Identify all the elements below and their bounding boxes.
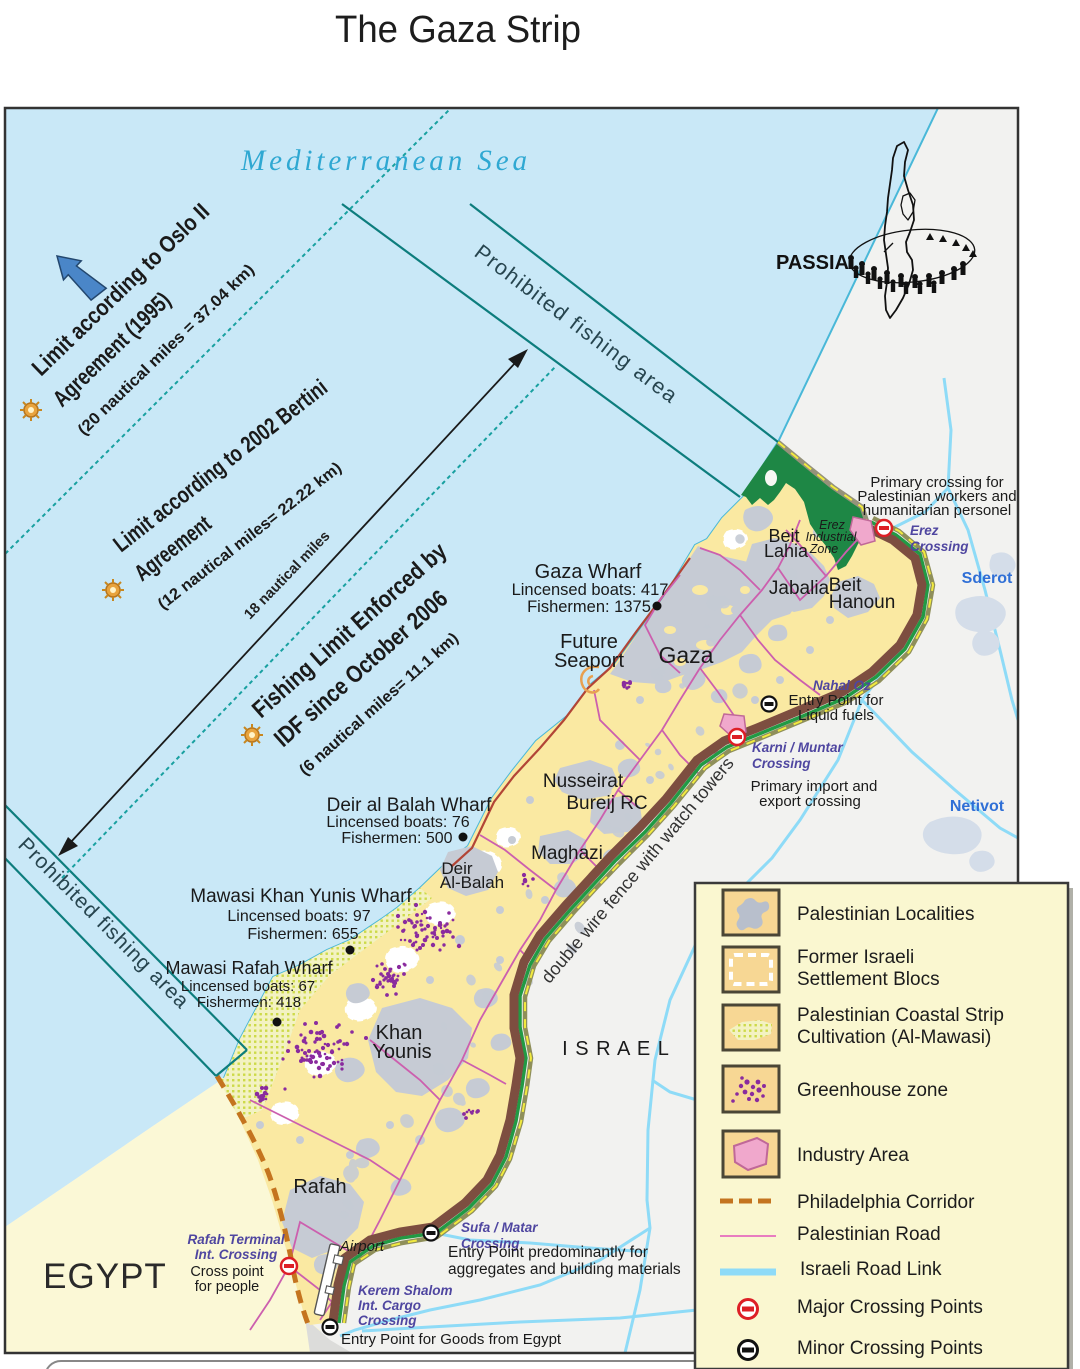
svg-text:Nusseirat: Nusseirat xyxy=(543,771,624,792)
svg-text:Karni / Muntar: Karni / Muntar xyxy=(752,740,844,755)
svg-text:aggregates and building materi: aggregates and building materials xyxy=(448,1261,681,1278)
svg-text:Sderot: Sderot xyxy=(962,570,1013,587)
svg-text:Sufa / Matar: Sufa / Matar xyxy=(461,1220,538,1235)
svg-text:Entry Point predominantly for: Entry Point predominantly for xyxy=(448,1244,648,1261)
svg-text:Cross point: Cross point xyxy=(190,1264,263,1280)
svg-text:Crossing: Crossing xyxy=(752,756,811,771)
svg-text:Lincensed boats: 76: Lincensed boats: 76 xyxy=(326,814,469,831)
svg-text:Fishermen: 655: Fishermen: 655 xyxy=(247,926,358,943)
svg-text:Entry Point for Goods from Egy: Entry Point for Goods from Egypt xyxy=(341,1331,562,1348)
svg-text:Deir al Balah Wharf: Deir al Balah Wharf xyxy=(327,795,492,816)
svg-text:Crossing: Crossing xyxy=(910,539,969,554)
svg-text:PASSIA: PASSIA xyxy=(776,252,849,274)
svg-text:Greenhouse zone: Greenhouse zone xyxy=(797,1080,948,1101)
svg-text:Al-Balah: Al-Balah xyxy=(440,873,504,892)
svg-text:Hanoun: Hanoun xyxy=(829,592,896,613)
svg-text:Int. Cargo: Int. Cargo xyxy=(358,1298,421,1313)
svg-text:Palestinian Road: Palestinian Road xyxy=(797,1224,941,1245)
svg-text:Airport: Airport xyxy=(339,1238,385,1255)
svg-text:Gaza: Gaza xyxy=(659,642,714,668)
svg-text:Mediterranean Sea: Mediterranean Sea xyxy=(240,144,531,177)
svg-text:Lahia: Lahia xyxy=(764,541,809,561)
svg-text:Fishermen: 500: Fishermen: 500 xyxy=(341,830,452,847)
svg-text:Seaport: Seaport xyxy=(554,650,624,672)
svg-text:Zone: Zone xyxy=(809,542,839,556)
svg-text:Mawasi Khan Yunis Wharf: Mawasi Khan Yunis Wharf xyxy=(190,886,412,907)
svg-text:Jabalia: Jabalia xyxy=(769,578,830,599)
svg-text:Lincensed boats: 97: Lincensed boats: 97 xyxy=(227,908,370,925)
svg-text:Bureij RC: Bureij RC xyxy=(566,793,647,814)
svg-text:Cultivation (Al-Mawasi): Cultivation (Al-Mawasi) xyxy=(797,1027,991,1048)
svg-text:Gaza Wharf: Gaza Wharf xyxy=(535,561,642,583)
svg-text:Maghazi: Maghazi xyxy=(531,843,603,864)
svg-text:Crossing: Crossing xyxy=(358,1313,417,1328)
svg-text:Rafah: Rafah xyxy=(293,1176,346,1198)
svg-text:EGYPT: EGYPT xyxy=(43,1257,167,1296)
svg-text:Mawasi Rafah Wharf: Mawasi Rafah Wharf xyxy=(165,958,333,978)
svg-text:Former Israeli: Former Israeli xyxy=(797,947,914,968)
svg-text:Rafah Terminal: Rafah Terminal xyxy=(187,1232,284,1247)
svg-text:humanitarian personel: humanitarian personel xyxy=(863,502,1011,519)
svg-text:Fishermen: 1375: Fishermen: 1375 xyxy=(527,598,651,616)
svg-text:Settlement Blocs: Settlement Blocs xyxy=(797,969,940,990)
svg-text:Palestinian Localities: Palestinian Localities xyxy=(797,904,974,925)
svg-text:Erez: Erez xyxy=(910,523,939,538)
svg-text:The Gaza Strip: The Gaza Strip xyxy=(335,9,581,51)
svg-text:for people: for people xyxy=(195,1279,260,1295)
svg-text:I S R A E L: I S R A E L xyxy=(562,1038,670,1060)
svg-text:Minor Crossing Points: Minor Crossing Points xyxy=(797,1338,983,1359)
svg-text:Israeli Road Link: Israeli Road Link xyxy=(800,1259,942,1280)
svg-text:Industry Area: Industry Area xyxy=(797,1145,909,1166)
svg-text:Netivot: Netivot xyxy=(950,798,1005,815)
svg-text:export crossing: export crossing xyxy=(759,793,861,810)
svg-text:Major Crossing Points: Major Crossing Points xyxy=(797,1297,983,1318)
svg-text:Lincensed boats: 417: Lincensed boats: 417 xyxy=(512,581,669,599)
svg-text:Younis: Younis xyxy=(372,1041,431,1063)
svg-text:Palestinian Coastal Strip: Palestinian Coastal Strip xyxy=(797,1005,1004,1026)
svg-text:Philadelphia Corridor: Philadelphia Corridor xyxy=(797,1192,975,1213)
svg-text:Kerem Shalom: Kerem Shalom xyxy=(358,1283,453,1298)
svg-text:Liquid fuels: Liquid fuels xyxy=(798,707,874,724)
svg-text:Fishermen: 418: Fishermen: 418 xyxy=(197,994,301,1011)
svg-text:Lincensed boats: 67: Lincensed boats: 67 xyxy=(181,978,315,995)
svg-text:Int. Crossing: Int. Crossing xyxy=(195,1247,278,1262)
svg-text:Nahal Oz: Nahal Oz xyxy=(813,678,871,693)
